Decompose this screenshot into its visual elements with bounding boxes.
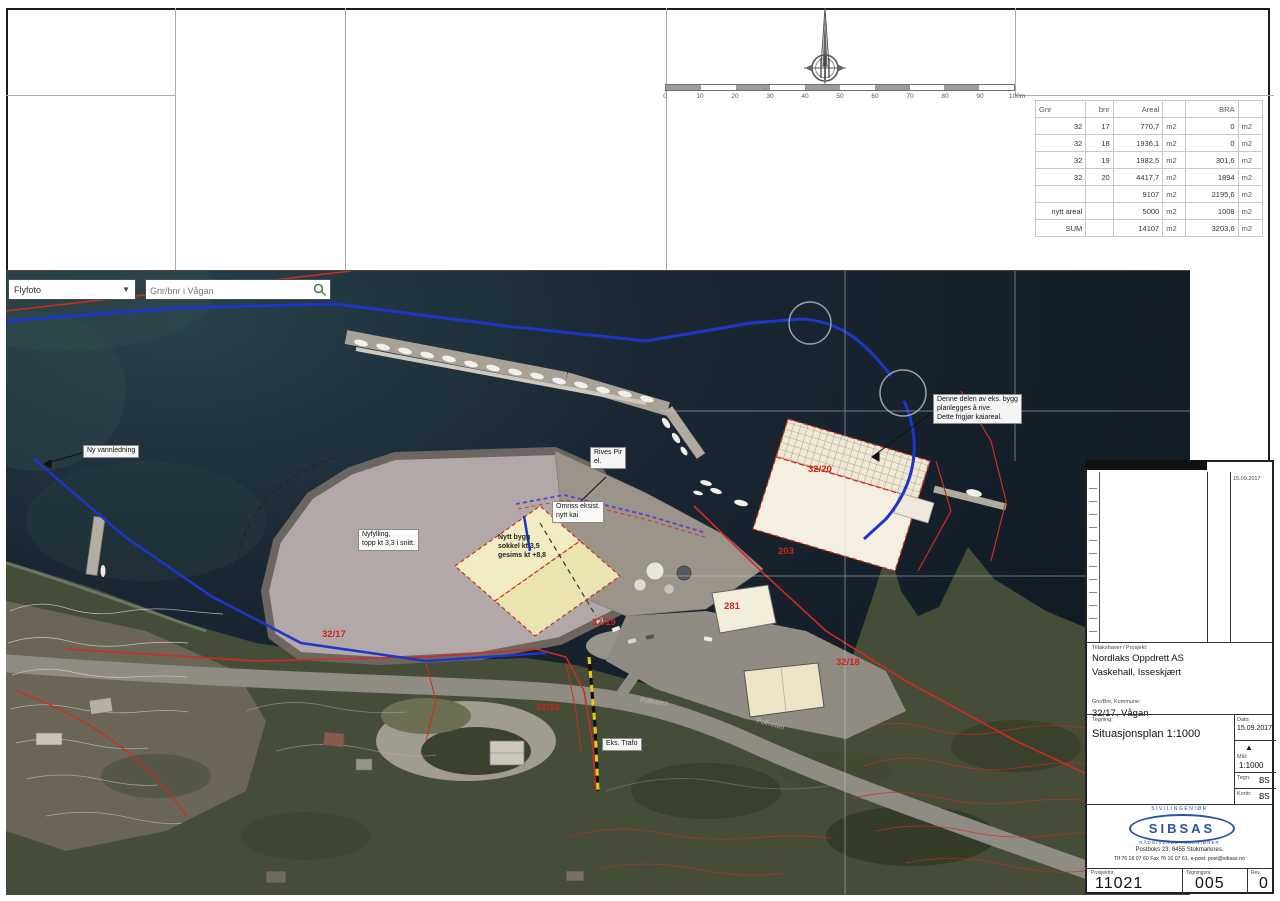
note-new-building: Nytt bygg sokkel kt 3,5 gesims kt +8,8: [498, 533, 546, 560]
table-cell: SUM: [1036, 220, 1086, 237]
title-block-tab: [1085, 460, 1207, 470]
area-summary-table: GnrbnrArealBRA3217770,7m20m232181936,1m2…: [1035, 100, 1263, 237]
parcel-label-32-16: 32/16: [536, 702, 560, 713]
table-cell: 1008: [1186, 203, 1238, 220]
table-cell: 1936,1: [1113, 135, 1163, 152]
client-name: Nordlaks Oppdrett AS: [1092, 653, 1184, 664]
table-cell: m2: [1238, 152, 1262, 169]
table-cell: m2: [1163, 152, 1186, 169]
table-row: 3217770,7m20m2: [1036, 118, 1263, 135]
grid-line-v4: [1015, 8, 1016, 95]
table-cell: 32: [1036, 169, 1086, 186]
scale-bar: 0 10 20 30 40 50 60 70 80 90 100m: [665, 84, 1015, 103]
grid-line-h2: [1015, 95, 1274, 96]
parcel-label-32-19: 32/19: [592, 617, 616, 628]
table-cell: 1894: [1186, 169, 1238, 186]
logo-top-text: SIVILINGENIØR: [1087, 806, 1272, 812]
grid-line-v2: [345, 8, 346, 270]
table-row: 32204417,7m21894m2: [1036, 169, 1263, 186]
note-new-quay: Omriss eksist. nytt kai: [552, 501, 604, 523]
table-cell: 20: [1086, 169, 1113, 186]
table-cell: [1086, 220, 1113, 237]
table-cell: 2195,6: [1186, 186, 1238, 203]
table-cell: 770,7: [1113, 118, 1163, 135]
table-cell: [1086, 203, 1113, 220]
table-cell: m2: [1238, 186, 1262, 203]
table-cell: m2: [1238, 118, 1262, 135]
drawn-label: Tegn:: [1237, 775, 1250, 781]
table-cell: m2: [1163, 118, 1186, 135]
table-cell: 32: [1036, 135, 1086, 152]
date-value: 15.09.2017: [1237, 725, 1272, 732]
table-cell: m2: [1163, 220, 1186, 237]
parcel-label-32-18: 32/18: [836, 657, 860, 668]
company-address: Postboks 23, 8455 Stokmarknes.: [1087, 847, 1272, 853]
project-no: 11021: [1095, 875, 1143, 893]
table-cell: 301,6: [1186, 152, 1238, 169]
chevron-down-icon: ▼: [122, 285, 130, 294]
table-cell: 17: [1086, 118, 1113, 135]
table-cell: m2: [1238, 203, 1262, 220]
table-row: 9107m22195,6m2: [1036, 186, 1263, 203]
grid-line-v1: [175, 8, 176, 270]
search-icon[interactable]: [313, 283, 327, 297]
note-water-pipeline: Ny vannledning: [83, 445, 139, 458]
grid-line-h1: [6, 95, 175, 96]
drawing-no: 005: [1195, 875, 1225, 893]
drawn-value: BS: [1259, 776, 1270, 785]
table-row: nytt areal5000m21008m2: [1036, 203, 1263, 220]
aerial-photo-drawing: [6, 271, 1190, 895]
table-cell: 1982,5: [1113, 152, 1163, 169]
table-cell: 5000: [1113, 203, 1163, 220]
table-cell: 32: [1036, 118, 1086, 135]
table-cell: m2: [1238, 220, 1262, 237]
map-search[interactable]: [145, 279, 331, 300]
layer-dropdown[interactable]: Flyfoto ▼: [8, 279, 136, 300]
checked-value: BS: [1259, 792, 1270, 801]
table-cell: m2: [1163, 135, 1186, 152]
scale-bar-labels: 0 10 20 30 40 50 60 70 80 90 100m: [665, 93, 1015, 103]
parcel-label-203: 203: [778, 546, 794, 557]
parcel-label-32-20: 32/20: [808, 464, 832, 475]
company-contact: Tlf 76 16 07 60 Fax 76 16 07 61, e-post:…: [1087, 856, 1272, 862]
table-cell: nytt areal: [1036, 203, 1086, 220]
revision-date: 15.09.2017: [1233, 476, 1261, 482]
table-cell: BRA: [1186, 101, 1238, 118]
table-row: SUM14107m23203,6m2: [1036, 220, 1263, 237]
table-cell: Areal: [1113, 101, 1163, 118]
scale-bar-segments: [665, 84, 1015, 91]
north-arrow-icon: [798, 6, 852, 92]
checked-label: Kontr:: [1237, 791, 1252, 797]
drawing-sheet: 0 10 20 30 40 50 60 70 80 90 100m Gnrbnr…: [0, 0, 1280, 901]
layer-dropdown-value: Flyfoto: [14, 285, 41, 295]
north-pointer-icon: ▲: [1245, 743, 1253, 752]
table-row: 32191982,5m2301,6m2: [1036, 152, 1263, 169]
map-view: Flyfoto ▼ Ny vannledning Nyfylling, topp…: [6, 270, 1190, 895]
project-name: Vaskehall, Isseskjært: [1092, 667, 1181, 678]
note-pier-demolish: Rives Pir el.: [590, 447, 626, 469]
table-cell: m2: [1163, 203, 1186, 220]
company-logo-name: SIBSAS: [1149, 821, 1215, 836]
rev-value: 0: [1259, 875, 1269, 893]
table-row: 32181936,1m20m2: [1036, 135, 1263, 152]
table-cell: [1238, 101, 1262, 118]
revision-ticks: [1089, 476, 1097, 638]
scale-label: Mål:: [1237, 754, 1247, 760]
table-cell: Gnr: [1036, 101, 1086, 118]
table-cell: 32: [1036, 152, 1086, 169]
table-cell: m2: [1163, 169, 1186, 186]
drawing-title: Situasjonsplan 1:1000: [1092, 728, 1200, 740]
table-cell: 0: [1186, 135, 1238, 152]
table-cell: 19: [1086, 152, 1113, 169]
table-cell: 18: [1086, 135, 1113, 152]
table-cell: 3203,6: [1186, 220, 1238, 237]
table-cell: m2: [1238, 135, 1262, 152]
note-new-fill: Nyfylling, topp kt 3,3 i snitt.: [358, 529, 419, 551]
scale-value: 1:1000: [1239, 761, 1263, 770]
parcel-label-281: 281: [724, 601, 740, 612]
table-cell: [1086, 186, 1113, 203]
search-input[interactable]: [148, 281, 310, 300]
logo-sub-text: RÅDGIVENDE INGENIØRER: [1087, 840, 1272, 845]
table-cell: 9107: [1113, 186, 1163, 203]
note-trafo: Eks. Trafo: [602, 738, 642, 751]
table-cell: m2: [1163, 186, 1186, 203]
drawing-label: Tegning:: [1092, 717, 1113, 723]
client-label: Tiltakshaver / Prosjekt:: [1092, 645, 1147, 651]
title-block: 15.09.2017 Tiltakshaver / Prosjekt: Nord…: [1085, 460, 1274, 894]
note-building-demolish: Denne delen av eks. bygg planlegges å ri…: [933, 394, 1022, 424]
grid-line-v3: [666, 8, 667, 270]
table-cell: [1036, 186, 1086, 203]
table-cell: 4417,7: [1113, 169, 1163, 186]
table-cell: m2: [1238, 169, 1262, 186]
table-cell: [1163, 101, 1186, 118]
date-label: Dato:: [1237, 717, 1250, 723]
table-cell: 14107: [1113, 220, 1163, 237]
property-label: Gnr/Bnr, Kommune:: [1092, 699, 1141, 705]
company-logo: SIBSAS: [1129, 814, 1235, 843]
table-cell: 0: [1186, 118, 1238, 135]
table-cell: bnr: [1086, 101, 1113, 118]
parcel-label-32-17: 32/17: [322, 629, 346, 640]
